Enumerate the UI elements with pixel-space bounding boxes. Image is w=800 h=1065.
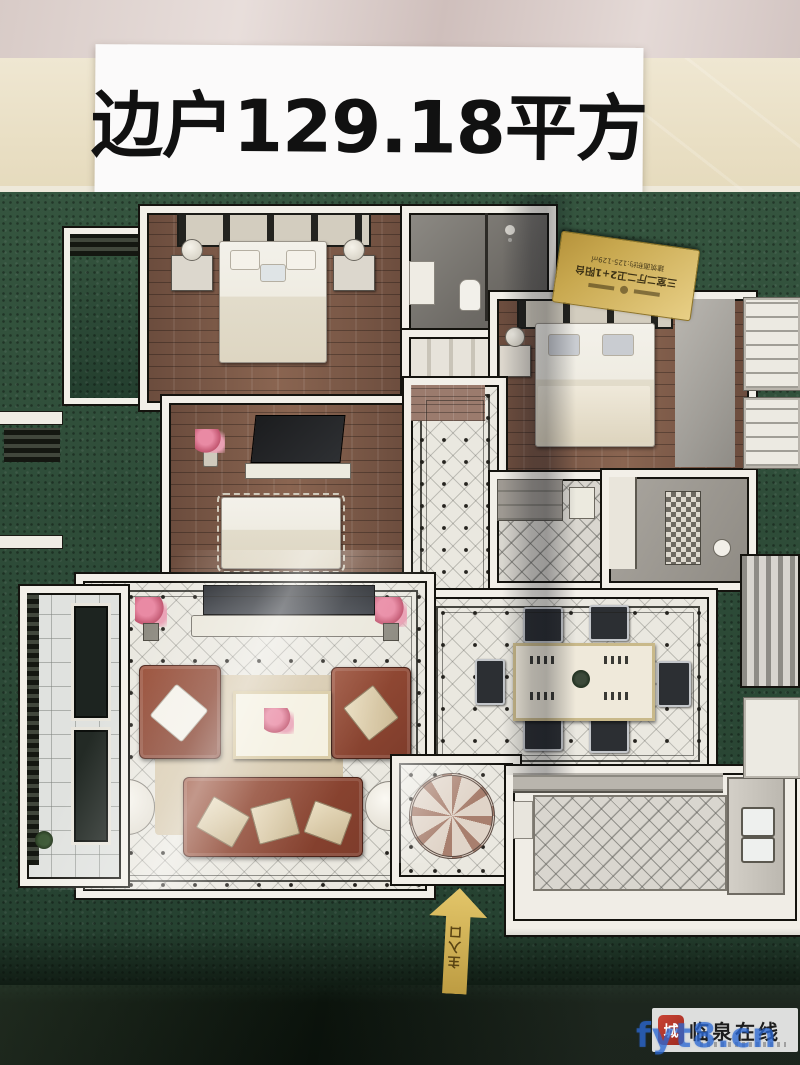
mosaic-tile-strip: [665, 491, 701, 565]
banner-text: 边户129.18平方: [91, 66, 648, 175]
pillow: [260, 264, 286, 282]
bathroom-2-stool: [713, 539, 731, 557]
shower-glass-divider: [485, 213, 488, 321]
glass-glare-diagonal: [10, 550, 450, 890]
bathroom-2: [602, 470, 756, 590]
table-lamp: [343, 239, 365, 261]
table-lamp: [181, 239, 203, 261]
dining-chair: [657, 661, 691, 707]
kitchen-counter-right: [727, 777, 785, 895]
pergola-slats-2: [4, 428, 60, 462]
pillow: [286, 250, 316, 270]
toilet: [459, 279, 481, 311]
planter-ledge-1: [0, 412, 62, 424]
kitchen-floor: [533, 795, 727, 891]
corridor-wood-threshold: [411, 385, 485, 421]
dining-chair: [589, 717, 629, 753]
photo-of-apartment-scale-model: 边户129.18平方: [0, 0, 800, 1065]
place-setting: [604, 656, 630, 664]
main-entrance-label: 主入口: [446, 924, 467, 970]
bedroom-1: [140, 206, 416, 410]
pillow: [602, 334, 634, 356]
right-ledge-2: [744, 398, 800, 468]
place-setting: [604, 692, 630, 700]
tv-screen: [250, 415, 345, 463]
pillow: [230, 250, 260, 270]
sink-basin-2: [741, 837, 775, 863]
planter-ledge-2: [0, 536, 62, 548]
kitchen-upper-counter: [513, 773, 723, 793]
pergola-slats: [70, 234, 148, 256]
watermark-url: fyt8.cn: [636, 1016, 777, 1056]
kitchen: [506, 766, 800, 935]
sink-basin-1: [741, 807, 775, 837]
bedroom-3-closet-area: [675, 299, 735, 467]
right-ledge-1: [744, 298, 800, 390]
right-ledge-3: [744, 698, 800, 778]
area-banner: 边户129.18平方: [94, 44, 643, 196]
dining-chair: [589, 605, 629, 641]
dining-chair: [475, 659, 505, 705]
bedroom-1-bed: [219, 241, 327, 363]
bathroom-vanity: [409, 261, 435, 305]
tv-cabinet: [245, 463, 351, 479]
flower-bouquet: [195, 429, 225, 453]
kitchen-cabinet: [513, 801, 533, 839]
right-louver-panel: [742, 556, 798, 686]
bathroom-2-door: [609, 477, 637, 569]
